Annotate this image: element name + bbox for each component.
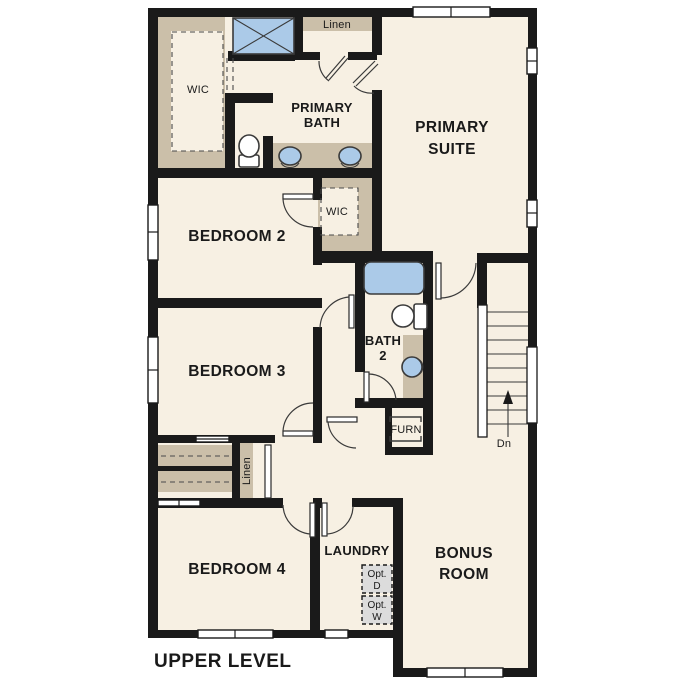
wall-exterior-left xyxy=(148,8,158,638)
floor-plan: Dn Opt. D Opt. W PRIMARY SUITE PRIMARY B… xyxy=(0,0,687,687)
bedroom3-label: BEDROOM 3 xyxy=(188,363,285,380)
wall-stair-landing-left xyxy=(477,253,487,308)
wall-shelf-right xyxy=(232,443,240,500)
window-suite-right-lower xyxy=(527,200,537,227)
wall-bedroom3-right xyxy=(313,327,322,443)
bedroom4-label: BEDROOM 4 xyxy=(188,561,285,578)
closet-door-bedroom3 xyxy=(196,436,229,442)
wall-toilet-nook-right xyxy=(263,136,273,170)
bonus-room-label-1: BONUS xyxy=(435,545,493,562)
bath2-label-2: 2 xyxy=(379,348,387,363)
primary-suite-label-2: SUITE xyxy=(428,141,476,158)
stair-rail-left xyxy=(478,305,487,437)
furnace-label: FURN xyxy=(390,424,421,436)
window-bedroom4-bottom xyxy=(198,630,273,638)
primary-bath-label-2: BATH xyxy=(304,115,340,130)
opt-dryer-label-1: Opt. xyxy=(368,569,387,580)
stair-rail-right xyxy=(527,347,537,423)
wall-laundry-top xyxy=(352,498,403,507)
bedroom2-label: BEDROOM 2 xyxy=(188,228,285,245)
wall-bedroom2-bottom xyxy=(158,298,322,308)
sink-icon-primary-left xyxy=(279,147,301,168)
toilet-icon-primary xyxy=(239,135,259,167)
sink-icon-primary-right xyxy=(339,147,361,168)
wall-toilet-nook-top xyxy=(235,93,273,103)
sink-icon-bath2 xyxy=(402,357,423,377)
window-suite-top xyxy=(413,7,490,17)
wic-bedroom2-label: WIC xyxy=(326,206,348,218)
closet-shelf-upper xyxy=(158,445,233,466)
wall-wic-primary-right xyxy=(225,93,235,170)
bathtub-icon xyxy=(364,262,424,294)
closet-shelf-lower xyxy=(158,471,233,492)
wall-wic2-suite xyxy=(372,178,382,255)
wall-exterior-right xyxy=(528,8,537,677)
wall-bath-suite-lower xyxy=(372,90,382,178)
wall-shelf-divider xyxy=(158,466,233,471)
linen-upper-label: Linen xyxy=(323,19,351,31)
wall-bath-bedroom2 xyxy=(158,168,382,178)
door-linen-hall xyxy=(265,445,271,498)
linen-hall-label: Linen xyxy=(241,457,253,485)
shower-icon xyxy=(233,18,294,54)
window-bedroom2-left xyxy=(148,205,158,260)
wall-bonus-left xyxy=(393,498,403,677)
opt-washer-label-2: W xyxy=(372,612,382,623)
window-bonus-bottom xyxy=(427,668,503,677)
stair-dn-label: Dn xyxy=(497,438,511,450)
laundry-label: LAUNDRY xyxy=(324,543,389,558)
wall-furn-bottom xyxy=(385,447,433,455)
wic-primary-label: WIC xyxy=(187,84,209,96)
opt-washer-label-1: Opt. xyxy=(368,600,387,611)
bonus-room-label-2: ROOM xyxy=(439,566,489,583)
wall-exterior-bottom-left xyxy=(148,630,403,638)
toilet-icon-bath2 xyxy=(392,304,427,329)
closet-door-bedroom4 xyxy=(158,500,200,506)
window-suite-right-upper xyxy=(527,48,537,74)
primary-bath-label-1: PRIMARY xyxy=(291,100,353,115)
wall-linen-bottom-left xyxy=(293,52,320,60)
primary-suite-label-1: PRIMARY xyxy=(415,119,489,136)
wall-bath-suite-upper xyxy=(372,17,382,55)
window-bedroom3-left xyxy=(148,337,158,403)
bath2-label-1: BATH xyxy=(365,333,401,348)
window-laundry-bottom xyxy=(325,630,348,638)
plan-title: UPPER LEVEL xyxy=(154,651,291,672)
opt-dryer-label-2: D xyxy=(373,581,380,592)
